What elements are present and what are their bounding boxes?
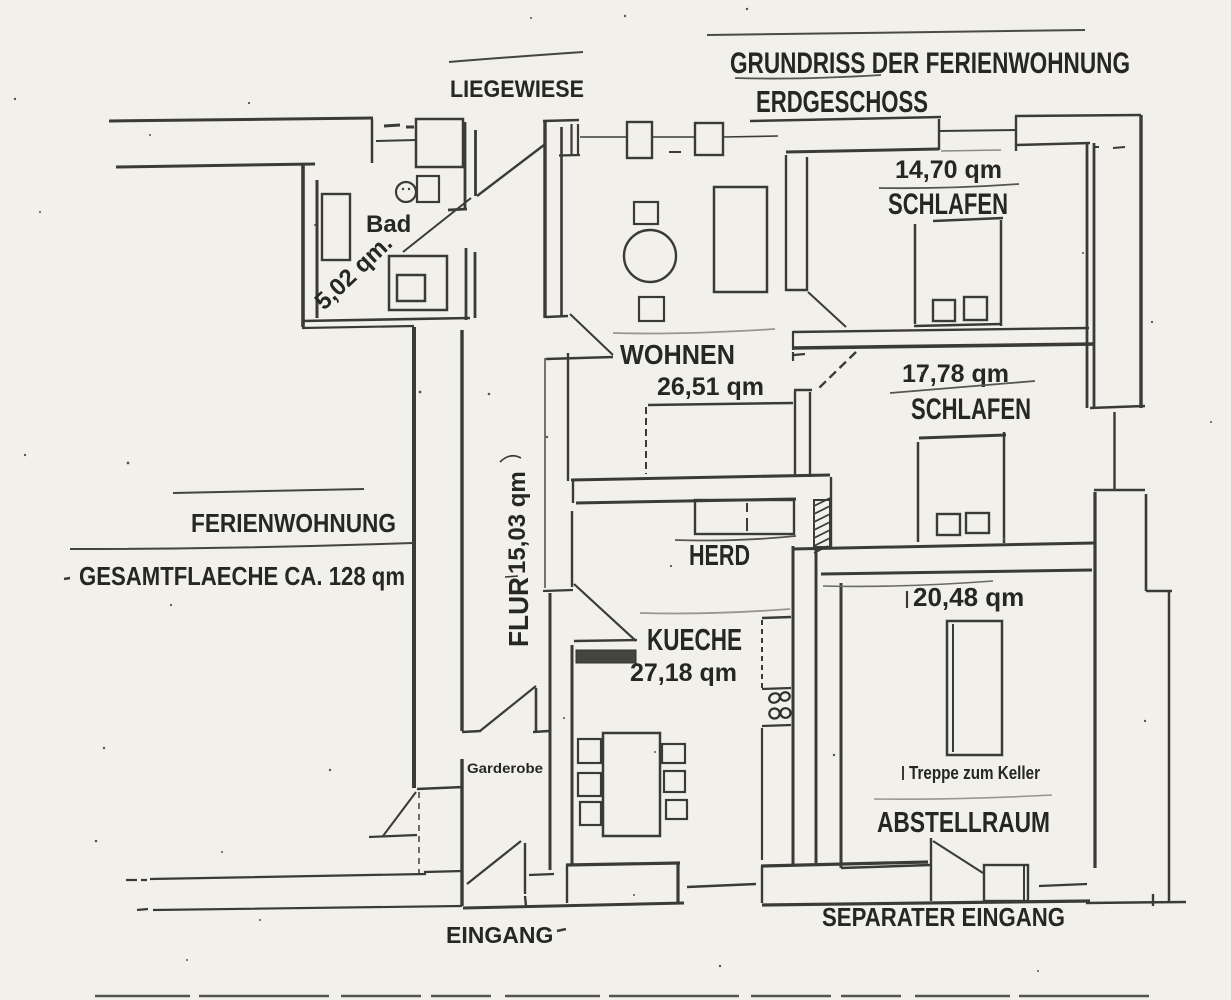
- svg-text:FERIENWOHNUNG: FERIENWOHNUNG: [191, 508, 396, 538]
- svg-text:Treppe zum Keller: Treppe zum Keller: [909, 763, 1040, 783]
- svg-text:27,18 qm: 27,18 qm: [630, 659, 737, 687]
- svg-text:SCHLAFEN: SCHLAFEN: [911, 393, 1031, 426]
- svg-text:SEPARATER EINGANG: SEPARATER EINGANG: [822, 902, 1065, 932]
- svg-text:26,51 qm: 26,51 qm: [657, 373, 764, 401]
- svg-text:HERD: HERD: [689, 540, 750, 572]
- svg-text:14,70 qm: 14,70 qm: [895, 156, 1002, 184]
- svg-text:KUECHE: KUECHE: [647, 622, 742, 657]
- svg-text:WOHNEN: WOHNEN: [620, 339, 735, 370]
- svg-text:15,03 qm: 15,03 qm: [504, 471, 531, 574]
- svg-text:LIEGEWIESE: LIEGEWIESE: [450, 76, 584, 103]
- svg-text:SCHLAFEN: SCHLAFEN: [888, 188, 1008, 221]
- svg-text:GRUNDRISS DER FERIENWOHNUNG: GRUNDRISS DER FERIENWOHNUNG: [730, 47, 1130, 80]
- svg-text:ABSTELLRAUM: ABSTELLRAUM: [877, 807, 1050, 839]
- svg-text:20,48 qm: 20,48 qm: [913, 582, 1024, 612]
- svg-text:Bad: Bad: [366, 211, 411, 238]
- svg-text:ERDGESCHOSS: ERDGESCHOSS: [756, 84, 928, 119]
- svg-text:GESAMTFLAECHE CA. 128 qm: GESAMTFLAECHE CA. 128 qm: [79, 561, 405, 591]
- svg-text:FLUR: FLUR: [503, 577, 534, 647]
- svg-text:EINGANG: EINGANG: [446, 922, 553, 948]
- svg-text:Garderobe: Garderobe: [467, 760, 543, 776]
